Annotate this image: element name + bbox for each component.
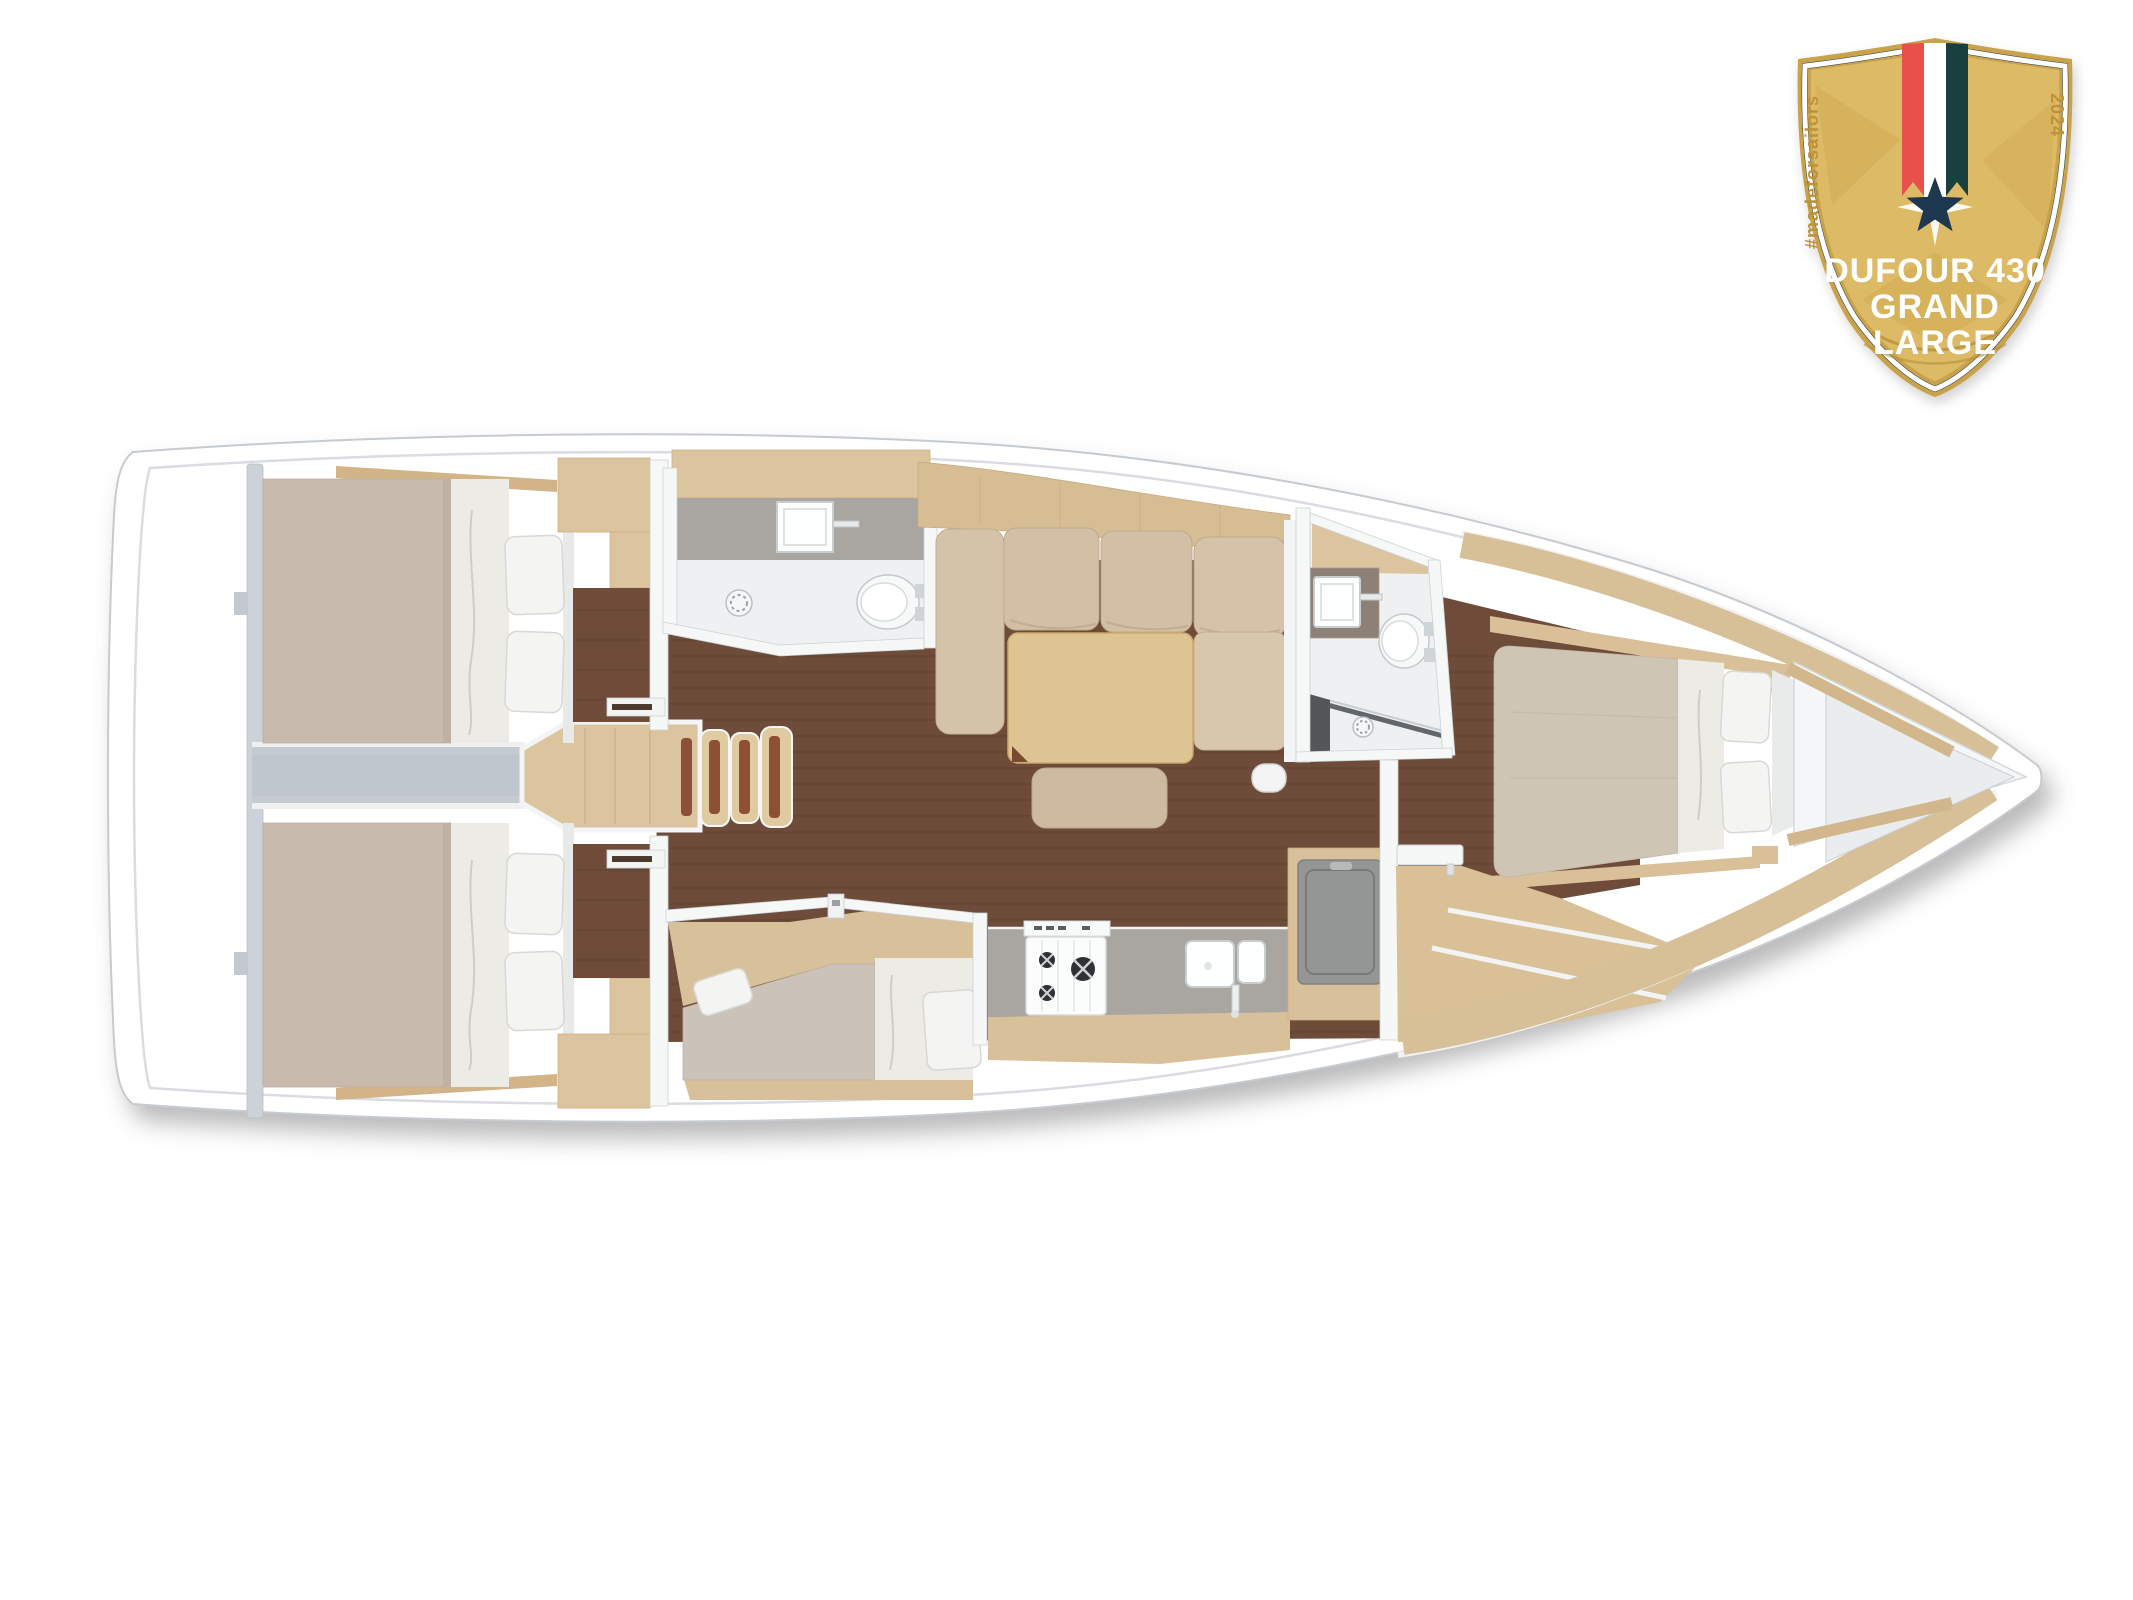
companionway bbox=[522, 722, 792, 830]
settee-back-cushion-3 bbox=[1194, 537, 1286, 637]
aft-cabin-starboard-door-wall bbox=[650, 836, 668, 1106]
aft-cabin-port-sheet bbox=[451, 479, 509, 743]
aft-cabin-starboard-pillow-2 bbox=[505, 951, 565, 1031]
aft-cabin-starboard-mattress bbox=[263, 823, 451, 1087]
aft-cabin-port-door-handle-bar bbox=[612, 704, 652, 710]
badge-ribbon-red bbox=[1902, 43, 1924, 196]
aft-cabin-starboard-pillow-1 bbox=[505, 853, 565, 935]
aft-head-shower-drain bbox=[726, 590, 752, 616]
ladder-stripe-4 bbox=[769, 736, 780, 818]
engine-corridor bbox=[252, 742, 525, 809]
ladder-stripe-1 bbox=[681, 738, 692, 816]
settee-corner-seat bbox=[1194, 632, 1286, 750]
fwd-head-faucet bbox=[1360, 594, 1382, 600]
fridge-lid-notch bbox=[1330, 862, 1352, 870]
corridor-inner bbox=[252, 754, 525, 796]
aft-cabin-port-cabinet-column bbox=[610, 532, 650, 588]
aft-cabin-starboard-cabinet-column bbox=[610, 978, 650, 1034]
aft-head-faucet bbox=[833, 521, 859, 527]
stove bbox=[1026, 937, 1106, 1015]
badge-hashtag: #madeforsailors bbox=[1802, 95, 1822, 249]
aft-cabin-starboard-door-handle-bar bbox=[612, 856, 652, 862]
fridge bbox=[1298, 860, 1382, 984]
settee-chaise-left bbox=[936, 529, 1004, 734]
stove-knob-1 bbox=[1034, 926, 1042, 930]
fwd-head-wall-left bbox=[1296, 508, 1310, 762]
aft-cabin-port-mattress bbox=[263, 479, 451, 743]
galley-faucet-handle bbox=[1231, 1010, 1239, 1018]
aft-cabin-port-mattress-edge bbox=[443, 479, 451, 743]
fwd-cabin-door bbox=[1397, 845, 1463, 865]
transom-tab-top bbox=[234, 592, 248, 615]
fwd-head-toilet-hinge-2 bbox=[1424, 648, 1436, 662]
award-badge: DUFOUR 430 GRAND LARGE #madeforsailors 2… bbox=[1798, 38, 2073, 397]
badge-title-line3: LARGE bbox=[1873, 324, 1997, 362]
corridor-wall-bottom bbox=[252, 803, 525, 809]
badge-ribbon-teal bbox=[1946, 43, 1968, 196]
aft-cabin-starboard-cabinet bbox=[558, 1034, 650, 1108]
mid-cabin-door-latch-notch bbox=[832, 900, 840, 906]
yacht-floorplan-canvas: DUFOUR 430 GRAND LARGE #madeforsailors 2… bbox=[0, 0, 2133, 1600]
aft-cabin-port-pillow-1 bbox=[505, 535, 565, 615]
fwd-bed-pillow-2 bbox=[1720, 761, 1772, 833]
ladder-stripe-2 bbox=[709, 740, 720, 814]
salon-ottoman bbox=[1032, 768, 1167, 828]
aft-cabin-starboard-sheet bbox=[451, 823, 509, 1087]
floorplan-svg: DUFOUR 430 GRAND LARGE #madeforsailors 2… bbox=[0, 0, 2133, 1600]
aft-head-top-cabinet bbox=[672, 450, 930, 498]
settee-back-cushion-2 bbox=[1101, 531, 1192, 632]
ladder-stripe-3 bbox=[739, 740, 750, 814]
fwd-cabin-door-handle bbox=[1447, 864, 1454, 875]
stove-knob-4 bbox=[1082, 926, 1090, 930]
mast-post bbox=[1252, 764, 1286, 792]
aft-cabin-starboard bbox=[263, 823, 668, 1108]
engine-box bbox=[522, 722, 700, 830]
fwd-cabin-door-wall bbox=[1380, 760, 1398, 1040]
fwd-head-toilet-lid bbox=[1382, 621, 1418, 661]
settee-back-cushion-1 bbox=[1004, 528, 1099, 630]
badge-title-line1: DUFOUR 430 bbox=[1824, 252, 2046, 290]
salon-table bbox=[1008, 633, 1193, 763]
galley-sink-left-drain bbox=[1204, 962, 1212, 970]
stove-knob-2 bbox=[1046, 926, 1054, 930]
fwd-bed-headboard bbox=[1772, 670, 1794, 836]
stove-knob-3 bbox=[1058, 926, 1066, 930]
badge-year: 2024 bbox=[2047, 93, 2067, 137]
transom-tab-bottom bbox=[234, 952, 248, 975]
mid-cabin-starboard bbox=[666, 894, 987, 1100]
aft-head-wall-left bbox=[663, 468, 677, 632]
aft-cabin-port-pillow-2 bbox=[505, 631, 565, 713]
mid-cabin-wall-right bbox=[973, 913, 987, 1045]
aft-head bbox=[663, 450, 937, 656]
aft-cabin-starboard-mattress-edge bbox=[443, 823, 451, 1087]
galley-faucet bbox=[1232, 985, 1239, 1011]
aft-cabin-port bbox=[263, 458, 668, 743]
fwd-bed-mattress bbox=[1494, 646, 1678, 877]
fwd-bed-pillow-1 bbox=[1720, 671, 1772, 743]
badge-title-line2: GRAND bbox=[1870, 288, 2000, 326]
fwd-bed-corner-wood-bottom bbox=[1752, 846, 1778, 864]
aft-head-toilet-lid bbox=[861, 583, 907, 621]
aft-cabin-port-cabinet bbox=[558, 458, 650, 532]
galley-sink-right bbox=[1238, 941, 1265, 983]
